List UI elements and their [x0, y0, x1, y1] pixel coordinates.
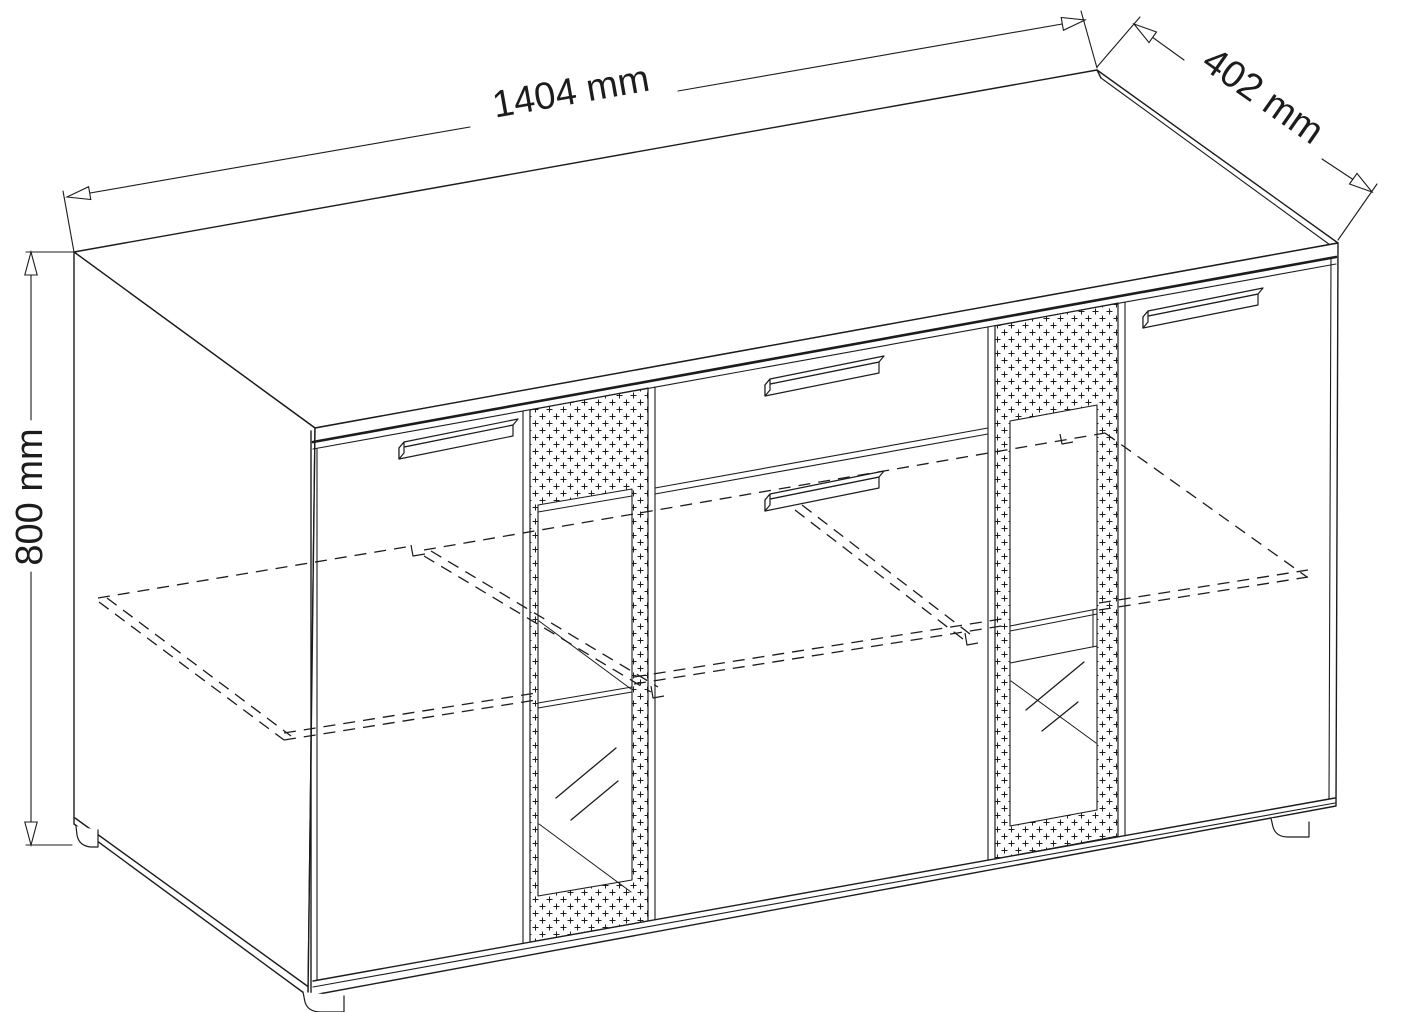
right-glass-window	[1010, 405, 1097, 826]
sideboard-dimension-diagram: 1404 mm 402 mm 800 mm	[0, 0, 1424, 1012]
height-dimension-label: 800 mm	[9, 428, 51, 565]
depth-dimension-label: 402 mm	[1195, 40, 1332, 153]
extension-line	[63, 191, 74, 252]
dimension-drawing-canvas: 1404 mm 402 mm 800 mm	[0, 0, 1424, 1012]
height-dimension: 800 mm	[9, 252, 76, 845]
left-glass-window	[538, 489, 632, 896]
extension-line	[1097, 17, 1140, 67]
foot-front-left	[303, 992, 344, 1012]
left-glass-door	[530, 388, 648, 942]
width-dimension-label: 1404 mm	[489, 58, 652, 127]
arrowhead-icon	[25, 822, 37, 845]
arrowhead-icon	[25, 252, 37, 275]
foot-front-right	[1271, 818, 1309, 837]
arrowhead-icon	[67, 187, 91, 200]
arrowhead-icon	[1350, 173, 1373, 192]
cabinet-body	[74, 70, 1338, 1012]
right-glass-door	[995, 303, 1118, 859]
arrowhead-icon	[1061, 18, 1085, 31]
arrowhead-icon	[1134, 24, 1157, 43]
extension-line	[1338, 184, 1377, 240]
